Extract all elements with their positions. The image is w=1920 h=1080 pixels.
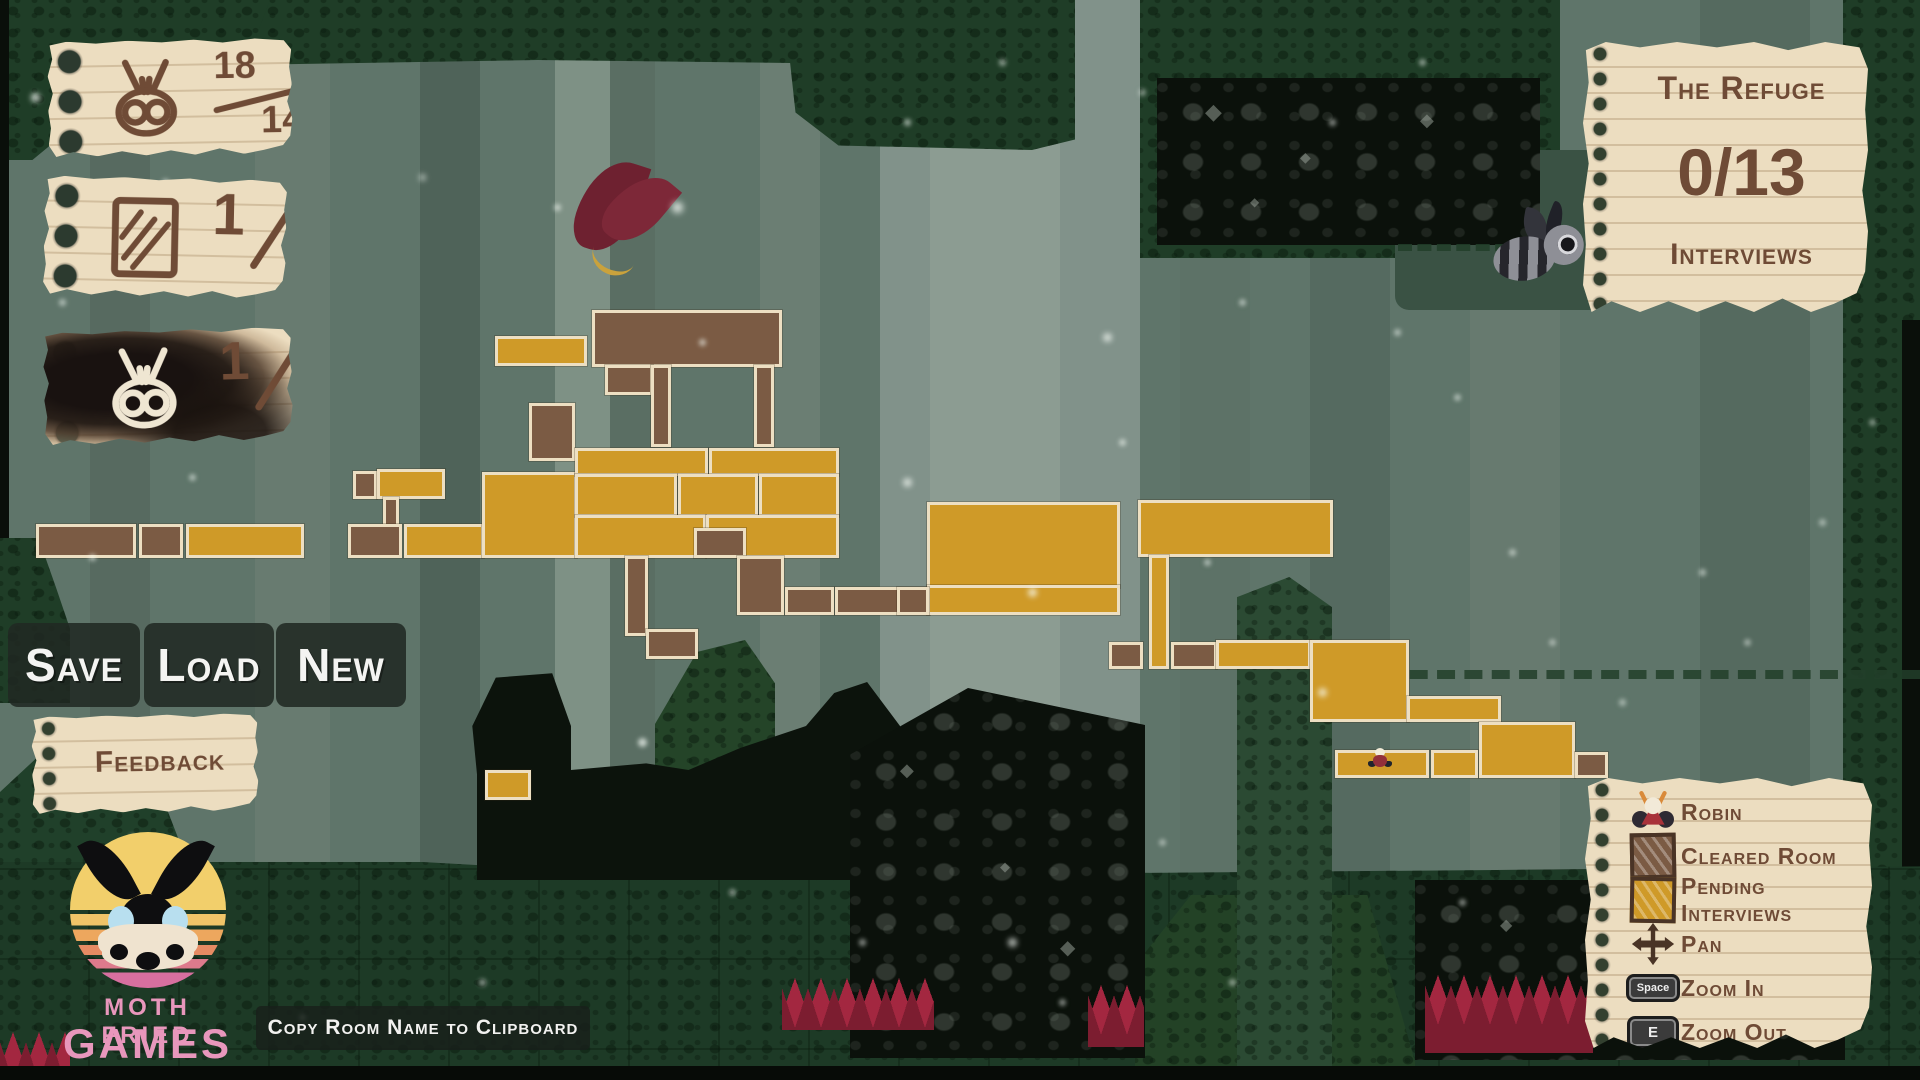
logo-line2: GAMES [55, 1020, 240, 1068]
map-room[interactable] [1431, 750, 1478, 778]
burned-counter-note: 1 5 [43, 327, 294, 445]
copy-room-name-hint: Copy Room Name to Clipboard [256, 1006, 590, 1050]
region-title: The Refuge [1615, 70, 1868, 107]
pending-room-swatch [1630, 877, 1677, 924]
hole-punches [47, 41, 93, 157]
robin-body [1373, 755, 1387, 767]
legend-label: Pan [1681, 931, 1722, 958]
map-room[interactable] [404, 524, 484, 558]
map-room[interactable] [1575, 752, 1608, 778]
legend-label: Cleared Room [1681, 843, 1837, 870]
legend-item-zoom-in: Space Zoom In [1625, 966, 1866, 1010]
burned-count-num: 1 [219, 330, 251, 393]
map-room[interactable] [1149, 555, 1169, 669]
map-room[interactable] [1109, 642, 1143, 669]
map-room[interactable] [1479, 722, 1575, 778]
burned-moth-head-icon [95, 339, 193, 437]
legend-panel: Robin Cleared Room Pending Interviews Pa… [1585, 778, 1872, 1048]
legend-label: Pending Interviews [1681, 873, 1866, 927]
map-room[interactable] [383, 497, 399, 527]
map-room[interactable] [529, 403, 575, 461]
ruff-spot [136, 952, 160, 970]
firefly-particles [0, 0, 5, 5]
legend-label: Robin [1681, 799, 1743, 826]
map-room[interactable] [348, 524, 402, 558]
cleared-room-swatch [1630, 833, 1677, 880]
new-button[interactable]: New [276, 623, 406, 707]
map-room[interactable] [785, 587, 834, 615]
map-room[interactable] [186, 524, 304, 558]
hole-punches [31, 716, 65, 814]
map-room[interactable] [646, 629, 698, 659]
map-room[interactable] [927, 502, 1120, 588]
map-room[interactable] [737, 556, 784, 615]
map-room[interactable] [592, 310, 782, 367]
map-room[interactable] [1138, 500, 1333, 557]
legend-item-pan: Pan [1625, 922, 1866, 966]
map-room[interactable] [139, 524, 183, 558]
map-room[interactable] [694, 528, 746, 558]
map-room[interactable] [678, 474, 758, 517]
map-room[interactable] [575, 474, 677, 517]
moth-count-num: 18 [213, 45, 256, 89]
region-count: 0/13 [1615, 134, 1868, 210]
hole-punches [43, 175, 89, 294]
map-room[interactable] [575, 448, 708, 476]
map-room[interactable] [625, 556, 648, 636]
legend-label: Zoom In [1681, 975, 1765, 1002]
map-room[interactable] [1310, 640, 1409, 722]
map-room[interactable] [495, 336, 587, 366]
map-room[interactable] [651, 365, 671, 447]
map-room[interactable] [1216, 640, 1311, 669]
ruff-spot [110, 944, 128, 960]
map-screen: ◆ ◆ ◆ ◆ ◆ ◆ ◆ ◆ ◆ ◆ [0, 0, 1920, 1080]
ruff-spot [166, 944, 184, 960]
map-room[interactable] [1407, 696, 1501, 722]
map-room[interactable] [36, 524, 136, 558]
save-button[interactable]: Save [8, 623, 140, 707]
map-room[interactable] [482, 472, 577, 558]
space-keycap: Space [1629, 977, 1677, 999]
map-room[interactable] [754, 365, 774, 447]
load-button[interactable]: Load [144, 623, 274, 707]
card-counter-note: 1 2 [43, 175, 287, 298]
hole-punches [43, 332, 90, 445]
map-room[interactable] [353, 471, 377, 499]
map-room[interactable] [897, 587, 929, 615]
moth-counter-note: 18 140 [47, 38, 293, 157]
robin-map-marker[interactable] [1368, 748, 1392, 774]
card-icon [105, 193, 185, 283]
pan-icon [1625, 922, 1681, 966]
map-room[interactable] [485, 770, 531, 800]
map-room[interactable] [759, 474, 839, 517]
map-room[interactable] [709, 448, 839, 476]
card-count-num: 1 [212, 181, 246, 249]
region-note: The Refuge 0/13 Interviews [1583, 42, 1868, 312]
moth-head-icon [99, 52, 193, 146]
map-room[interactable] [377, 469, 445, 499]
map-room[interactable] [575, 515, 706, 558]
map-room[interactable] [927, 585, 1120, 615]
feedback-label: Feedback [62, 743, 259, 780]
region-subtitle: Interviews [1615, 238, 1868, 272]
legend-item-cleared-room: Cleared Room [1625, 834, 1866, 878]
legend-item-robin: Robin [1625, 790, 1866, 834]
legend-item-pending-interviews: Pending Interviews [1625, 878, 1866, 922]
moth-fried-games-logo [70, 832, 226, 988]
map-room[interactable] [1171, 642, 1217, 669]
feedback-button[interactable]: Feedback [31, 713, 259, 814]
map-room[interactable] [605, 365, 653, 395]
robin-icon [1625, 791, 1681, 833]
